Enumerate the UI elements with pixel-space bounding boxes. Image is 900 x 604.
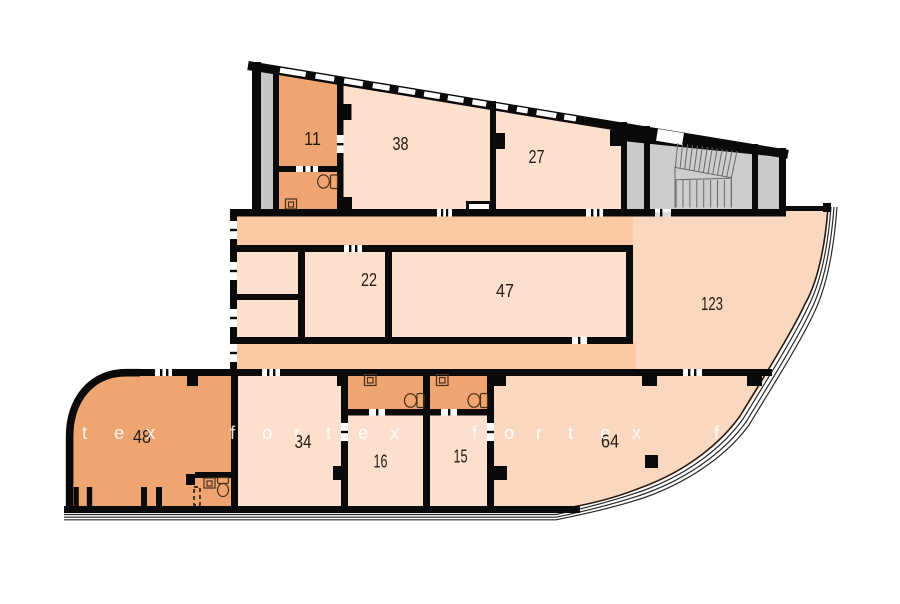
svg-text:t: t [326, 422, 331, 443]
svg-text:o: o [18, 422, 28, 443]
svg-text:o: o [262, 422, 272, 443]
svg-text:16: 16 [374, 451, 388, 472]
svg-text:x: x [146, 422, 156, 443]
svg-text:r: r [294, 422, 300, 443]
svg-text:15: 15 [454, 446, 468, 467]
svg-text:22: 22 [361, 269, 377, 290]
svg-text:27: 27 [529, 146, 545, 167]
svg-text:x: x [632, 422, 642, 443]
svg-text:f: f [714, 422, 720, 443]
svg-text:38: 38 [393, 133, 409, 154]
svg-text:e: e [600, 422, 610, 443]
svg-text:r: r [50, 422, 56, 443]
svg-text:f: f [230, 422, 236, 443]
svg-text:11: 11 [304, 128, 321, 149]
svg-text:e: e [358, 422, 368, 443]
svg-text:47: 47 [496, 280, 514, 301]
svg-text:e: e [114, 422, 124, 443]
svg-text:r: r [536, 422, 542, 443]
svg-text:t: t [82, 422, 87, 443]
svg-text:t: t [568, 422, 573, 443]
svg-text:123: 123 [701, 293, 723, 314]
svg-text:f: f [472, 422, 478, 443]
svg-text:o: o [746, 422, 756, 443]
svg-text:x: x [390, 422, 400, 443]
svg-text:o: o [504, 422, 514, 443]
